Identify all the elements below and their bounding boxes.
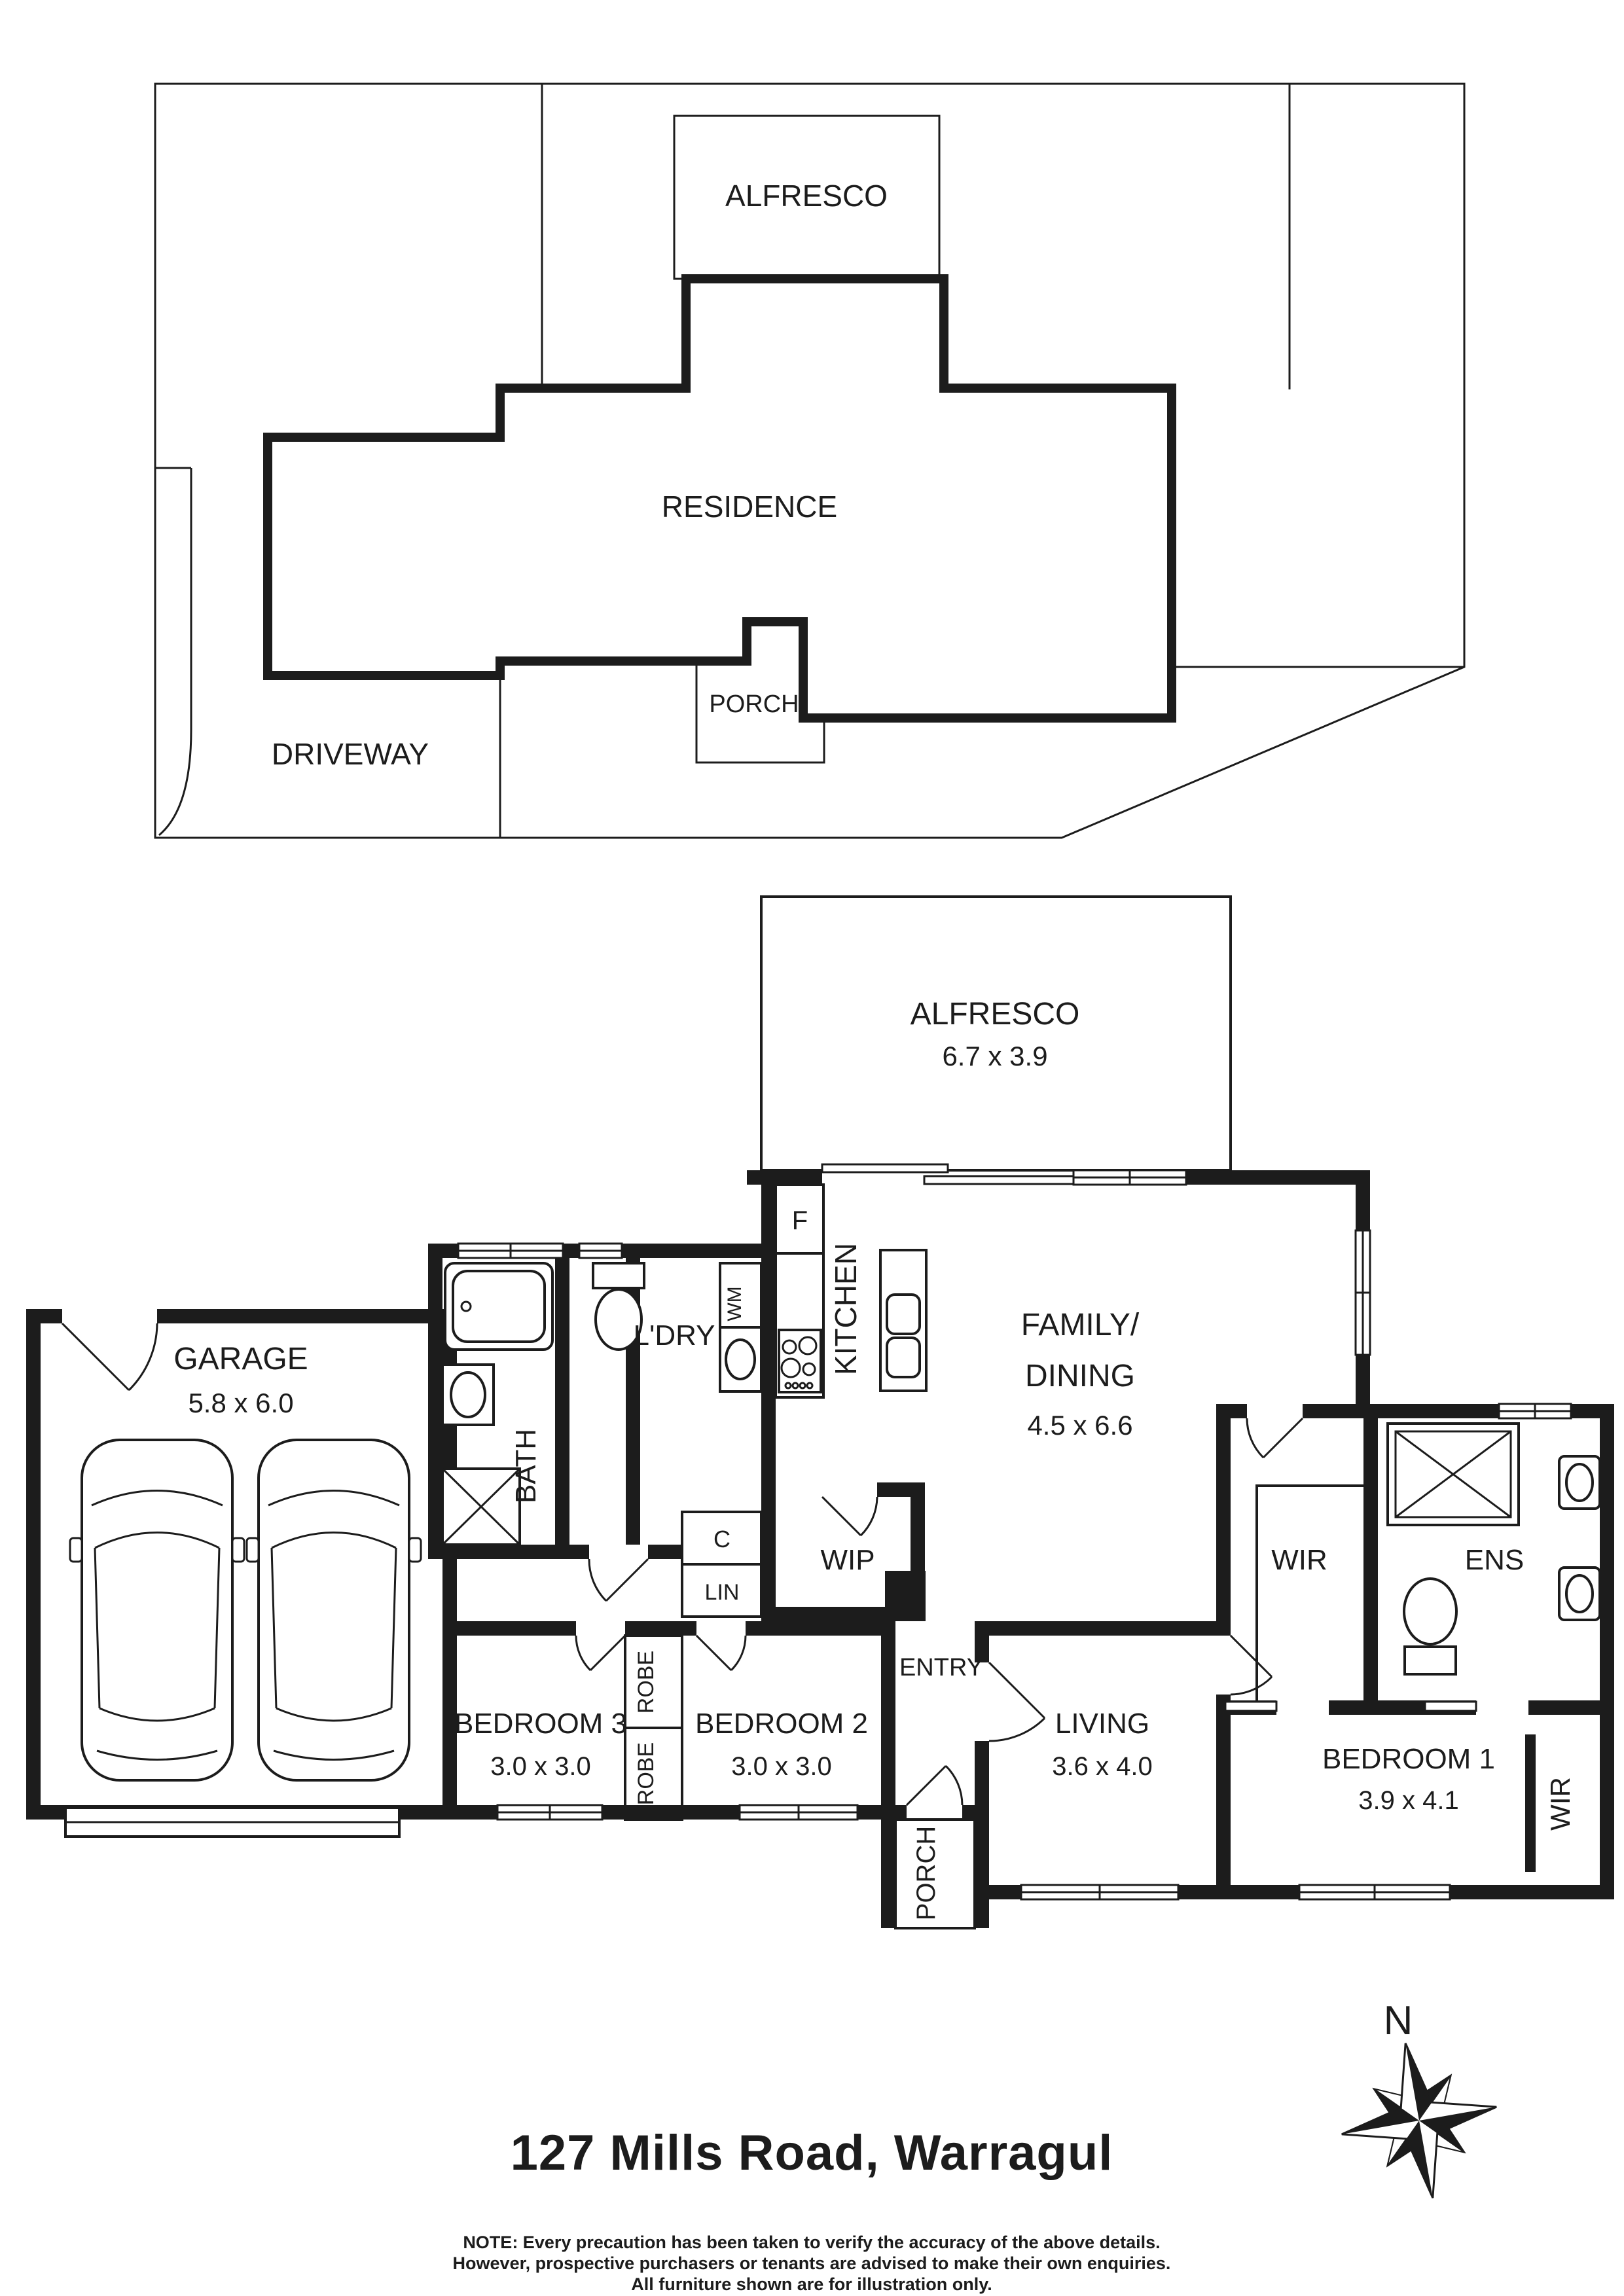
porch-label: PORCH (912, 1826, 941, 1920)
note-line-2: However, prospective purchasers or tenan… (453, 2253, 1171, 2273)
door-wip (822, 1497, 877, 1535)
floorplan-page: ALFRESCO RESIDENCE PORCH DRIVEWAY ALFRES… (0, 0, 1624, 2296)
address-title: 127 Mills Road, Warragul (511, 2125, 1113, 2181)
door-living (989, 1662, 1045, 1741)
window-bed2 (740, 1805, 857, 1820)
door-front (907, 1766, 962, 1805)
garage-dims: 5.8 x 6.0 (188, 1388, 293, 1418)
family-label-2: DINING (1025, 1359, 1135, 1393)
door-garage (62, 1323, 157, 1390)
living-dims: 3.6 x 4.0 (1052, 1752, 1152, 1781)
window-bed1 (1299, 1885, 1450, 1899)
wip-label: WIP (820, 1544, 875, 1576)
site-alfresco-label: ALFRESCO (725, 179, 888, 213)
site-porch-label: PORCH (709, 691, 799, 718)
bath-shower (442, 1469, 520, 1545)
cupboard-label: C (713, 1526, 731, 1552)
bath-label: BATH (510, 1429, 542, 1503)
laundry-sink (720, 1327, 761, 1391)
bed3-dims: 3.0 x 3.0 (490, 1752, 590, 1781)
site-plan: ALFRESCO RESIDENCE PORCH DRIVEWAY (155, 84, 1464, 838)
ens-toilet (1404, 1579, 1456, 1674)
door-bed2 (696, 1636, 746, 1670)
bed2-dims: 3.0 x 3.0 (731, 1752, 831, 1781)
wir-label: WIR (1271, 1544, 1327, 1576)
garage-label: GARAGE (173, 1342, 308, 1376)
ens-shower (1388, 1424, 1519, 1525)
kitchen-label: KITCHEN (829, 1243, 863, 1375)
bath-basin (442, 1365, 494, 1425)
kitchen-island (880, 1250, 926, 1391)
alfresco-outline (761, 897, 1231, 1170)
window-family-top (1074, 1170, 1186, 1185)
living-label: LIVING (1055, 1708, 1149, 1740)
floorplan-canvas: ALFRESCO RESIDENCE PORCH DRIVEWAY ALFRES… (0, 0, 1624, 2296)
linen-label: LIN (705, 1580, 740, 1605)
window-bed3 (497, 1805, 602, 1820)
family-dims: 4.5 x 6.6 (1027, 1410, 1132, 1441)
window-living (1021, 1885, 1178, 1899)
alfresco-label: ALFRESCO (911, 997, 1080, 1031)
door-wc (589, 1559, 648, 1601)
driveway-edge (159, 468, 191, 835)
laundry-label: L'DRY (634, 1319, 715, 1352)
note-line-1: NOTE: Every precaution has been taken to… (463, 2233, 1160, 2252)
compass-north-label: N (1384, 1998, 1413, 2043)
window-bath (458, 1244, 563, 1258)
bed1-dims: 3.9 x 4.1 (1358, 1786, 1458, 1815)
slider-wir-door (1225, 1702, 1276, 1711)
ens-basin-2 (1559, 1568, 1600, 1620)
washing-machine-label: WM (724, 1286, 746, 1321)
door-bed3 (576, 1636, 625, 1670)
cooktop (779, 1330, 821, 1392)
robe-label-2: ROBE (634, 1742, 659, 1805)
window-family-right (1356, 1230, 1370, 1355)
site-driveway-label: DRIVEWAY (272, 737, 429, 771)
bathtub (445, 1263, 552, 1350)
note-line-3: All furniture shown are for illustration… (631, 2274, 992, 2294)
fridge-label: F (792, 1206, 808, 1235)
bed2-label: BEDROOM 2 (695, 1708, 868, 1740)
car-left (70, 1440, 244, 1780)
compass-rose (1328, 2030, 1510, 2212)
bed1-label: BEDROOM 1 (1322, 1743, 1495, 1775)
bed3-label: BEDROOM 3 (454, 1708, 627, 1740)
family-label-1: FAMILY/ (1021, 1308, 1140, 1342)
wir-closet-line (1257, 1486, 1363, 1700)
door-wir (1247, 1418, 1303, 1458)
ens-label: ENS (1465, 1544, 1524, 1576)
door-bed1 (1231, 1636, 1272, 1695)
ens-basin-1 (1559, 1456, 1600, 1509)
slider-ens-door (1425, 1702, 1476, 1711)
sliding-door-alfresco (822, 1164, 1074, 1184)
footer: N 127 Mills Road, Warragul NOTE: Every p… (453, 1998, 1510, 2294)
garage-door (65, 1808, 399, 1837)
alfresco-dims: 6.7 x 3.9 (942, 1041, 1047, 1071)
entry-label: ENTRY (899, 1654, 983, 1681)
window-wc (579, 1244, 622, 1258)
site-residence-label: RESIDENCE (662, 490, 837, 524)
bed1-wir-label: WIR (1545, 1777, 1576, 1831)
robe-label-1: ROBE (634, 1651, 659, 1713)
floor-plan: ALFRESCO 6.7 x 3.9 (26, 897, 1614, 1928)
car-right (247, 1440, 421, 1780)
window-ens (1499, 1404, 1571, 1418)
